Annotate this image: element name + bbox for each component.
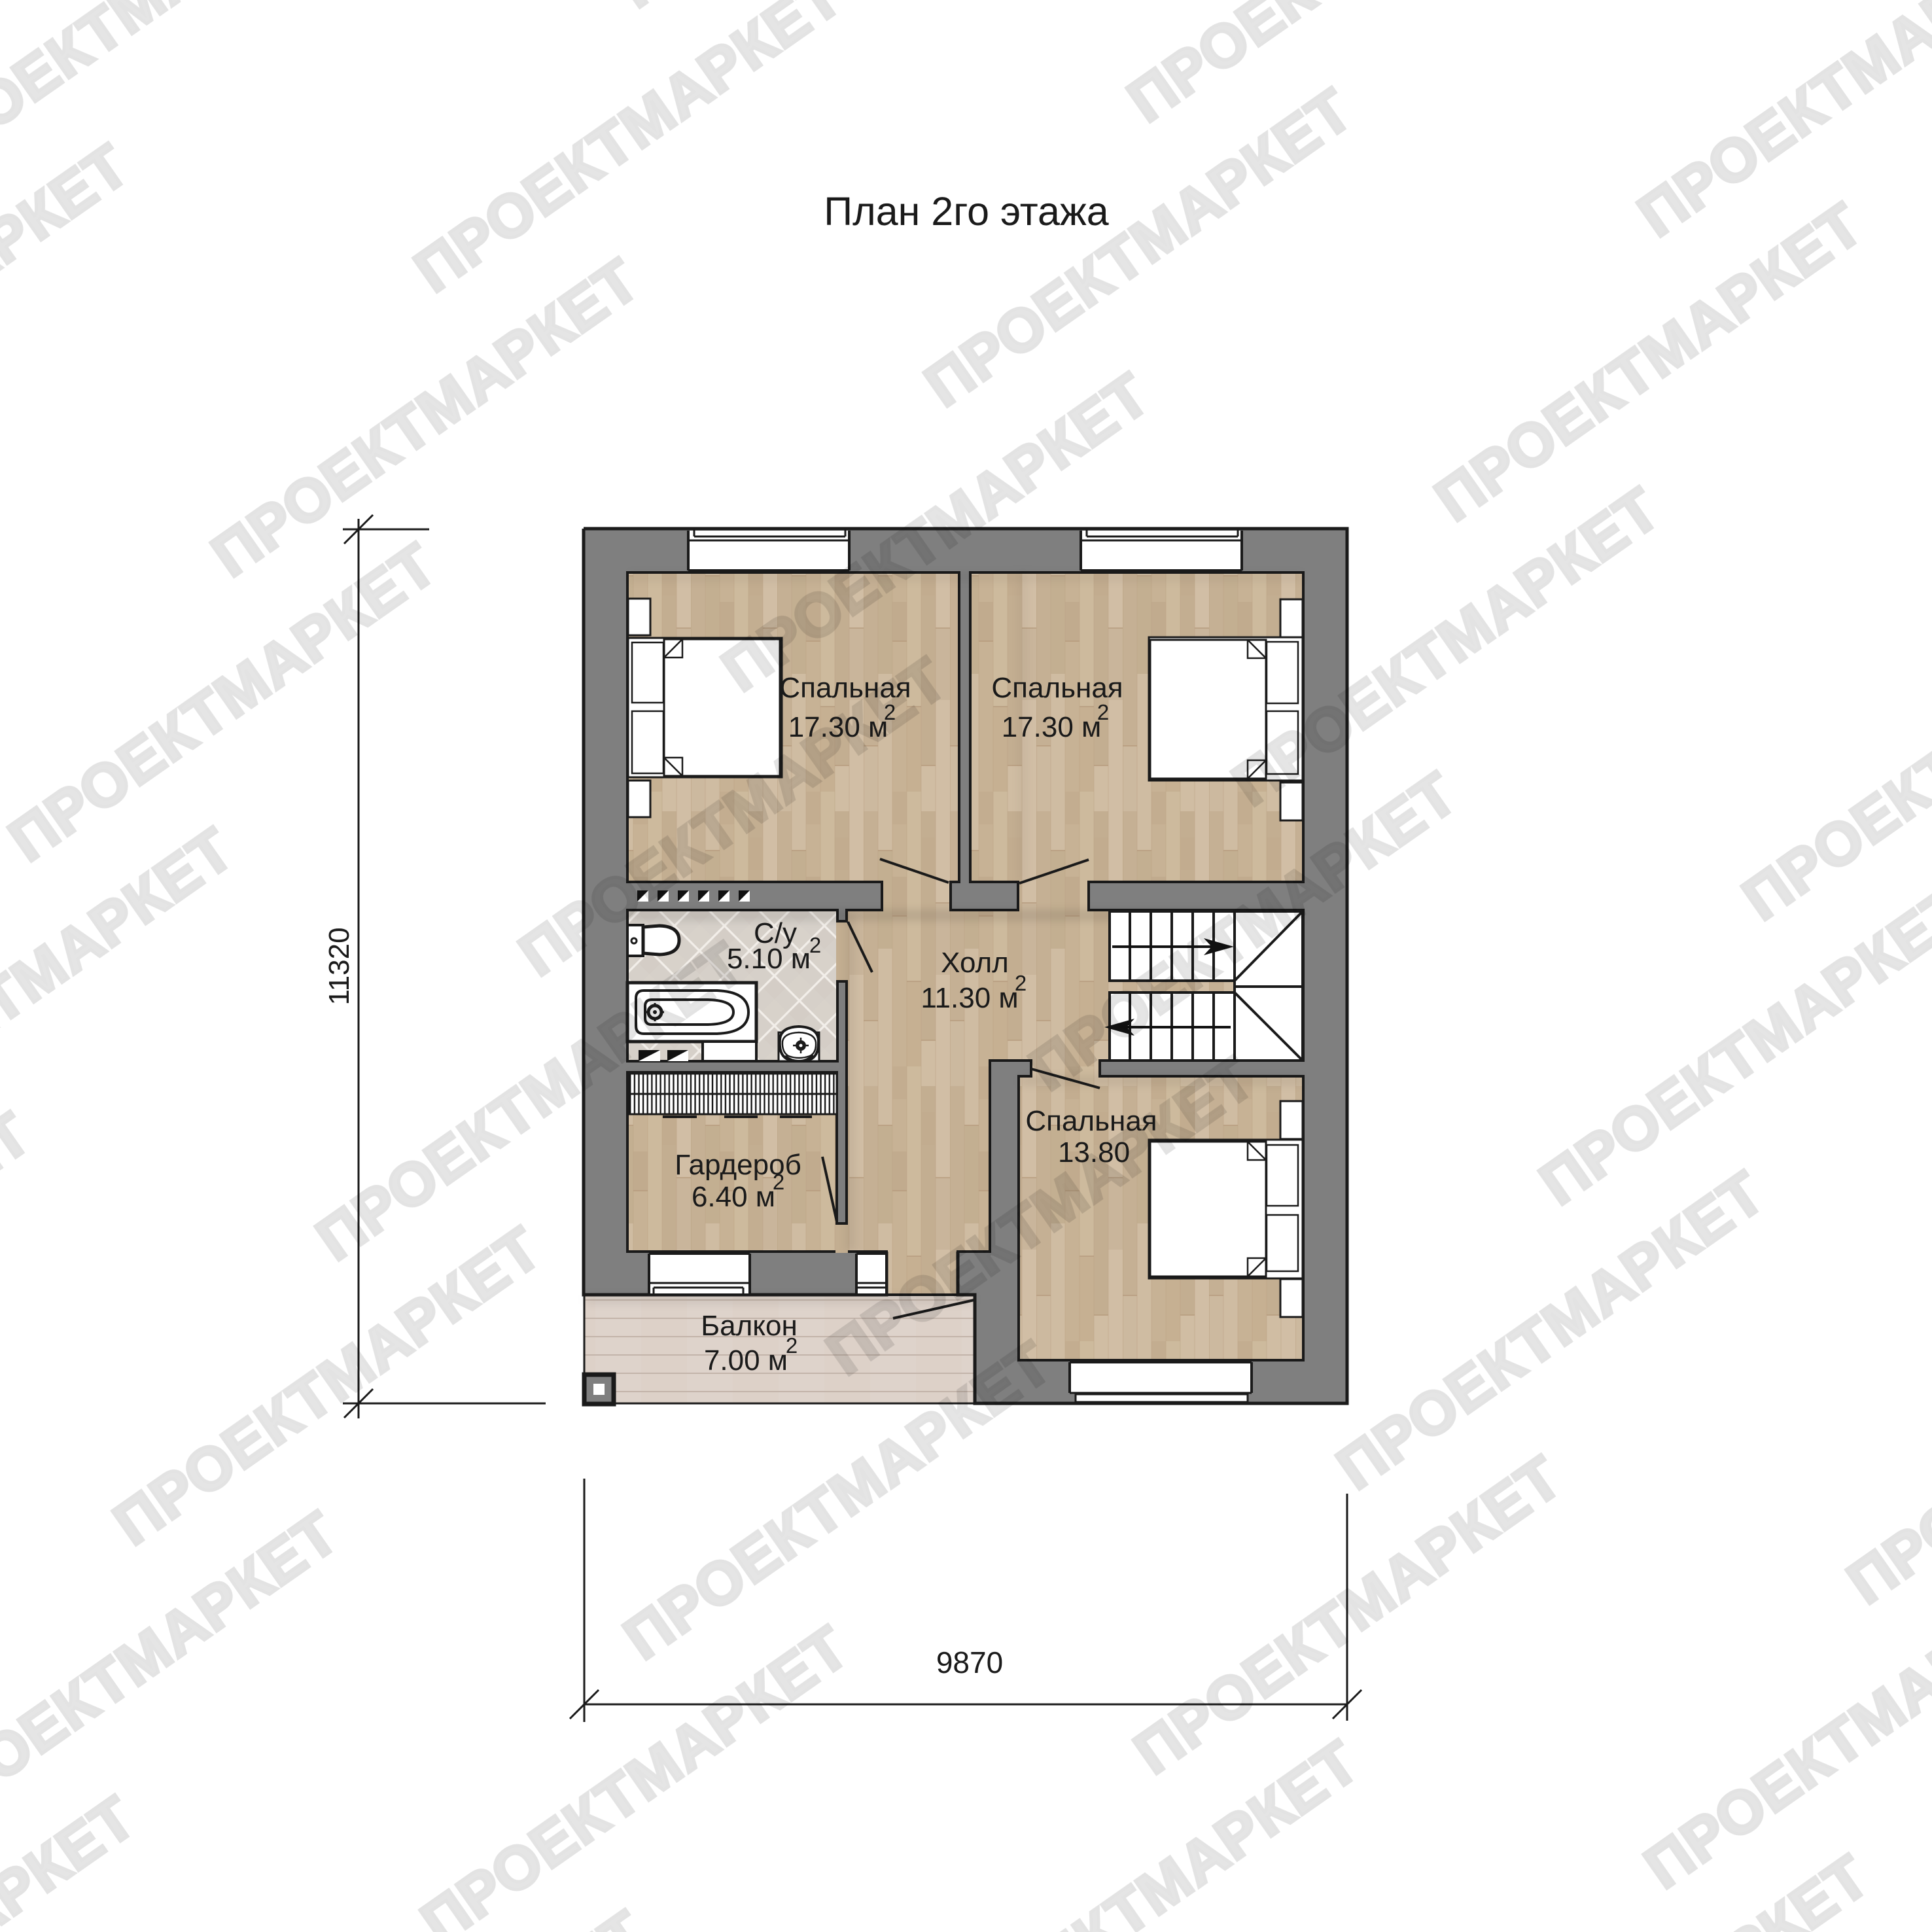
svg-text:2: 2	[809, 933, 821, 957]
svg-text:11.30 м: 11.30 м	[921, 982, 1018, 1014]
svg-text:Холл: Холл	[941, 947, 1009, 979]
svg-text:Балкон: Балкон	[701, 1310, 798, 1342]
svg-text:11320: 11320	[323, 927, 355, 1005]
svg-text:9870: 9870	[936, 1645, 1003, 1679]
svg-text:6.40 м: 6.40 м	[692, 1181, 775, 1213]
svg-text:7.00 м: 7.00 м	[704, 1344, 788, 1377]
svg-text:Спальная: Спальная	[991, 672, 1123, 704]
svg-text:2: 2	[1015, 971, 1027, 995]
svg-text:17.30 м: 17.30 м	[1002, 711, 1102, 743]
svg-text:2: 2	[1097, 700, 1109, 724]
svg-text:План 2го этажа: План 2го этажа	[824, 189, 1108, 234]
svg-text:2: 2	[786, 1333, 798, 1358]
svg-text:2: 2	[773, 1170, 784, 1194]
